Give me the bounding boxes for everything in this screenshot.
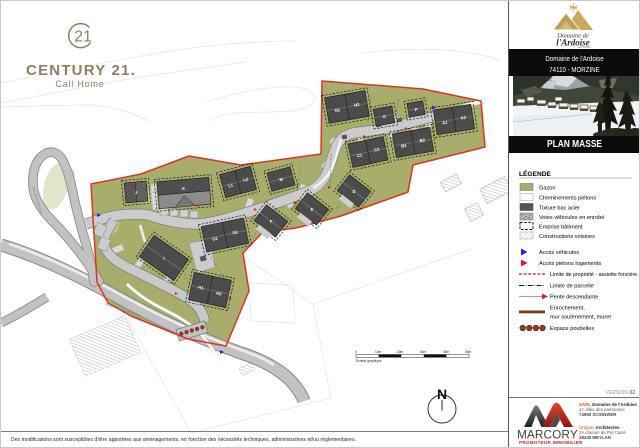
svg-text:K: K [182, 186, 185, 191]
svg-text:Accès véhicules: Accès véhicules [539, 250, 579, 256]
svg-text:Accès piétons logements: Accès piétons logements [539, 261, 601, 267]
svg-text:21: 21 [74, 29, 92, 46]
svg-text:20m: 20m [397, 350, 404, 354]
svg-text:Échelle graphique: Échelle graphique [356, 358, 382, 363]
svg-text:Call Home: Call Home [55, 79, 104, 89]
svg-text:PROMOTEUR IMMOBILIER: PROMOTEUR IMMOBILIER [519, 440, 583, 445]
svg-text:38240 MEYLAN: 38240 MEYLAN [579, 435, 611, 440]
svg-text:74950 SCIONZIER: 74950 SCIONZIER [579, 412, 617, 417]
svg-text:Emprise bâtiment: Emprise bâtiment [539, 225, 583, 231]
svg-text:N: N [437, 386, 447, 402]
svg-text:30m: 30m [420, 350, 427, 354]
svg-text:I: I [163, 256, 164, 261]
svg-text:LÉGENDE: LÉGENDE [519, 169, 551, 178]
svg-text:F: F [270, 219, 273, 224]
svg-text:Pente descendante: Pente descendante [550, 295, 598, 301]
svg-text:D: D [352, 189, 355, 194]
svg-text:Enrochement,: Enrochement, [550, 306, 585, 312]
svg-text:Constructions voisines: Constructions voisines [539, 234, 595, 240]
svg-text:Toiture bac acier: Toiture bac acier [539, 206, 580, 212]
svg-text:Limite de propriété - assiette: Limite de propriété - assiette foncière [550, 272, 637, 278]
svg-text:mur soutènement, muret: mur soutènement, muret [550, 315, 611, 321]
svg-text:Espace poubelles: Espace poubelles [550, 326, 594, 332]
svg-text:Des modifications sont suscept: Des modifications sont susceptibles d'êt… [11, 437, 356, 443]
svg-text:0: 0 [355, 350, 357, 354]
svg-text:E: E [311, 207, 314, 212]
svg-text:VERSION 02: VERSION 02 [606, 390, 636, 396]
svg-text:CENTURY 21.: CENTURY 21. [26, 62, 136, 79]
svg-text:40m: 40m [443, 350, 450, 354]
svg-text:Cheminements piétons: Cheminements piétons [539, 196, 596, 202]
svg-text:Limite de parcelle: Limite de parcelle [550, 284, 594, 290]
svg-text:Voies véhicules en enrobé: Voies véhicules en enrobé [539, 215, 604, 221]
svg-text:50m: 50m [465, 350, 472, 354]
svg-text:Gazon: Gazon [539, 186, 555, 192]
svg-text:10m: 10m [375, 350, 382, 354]
